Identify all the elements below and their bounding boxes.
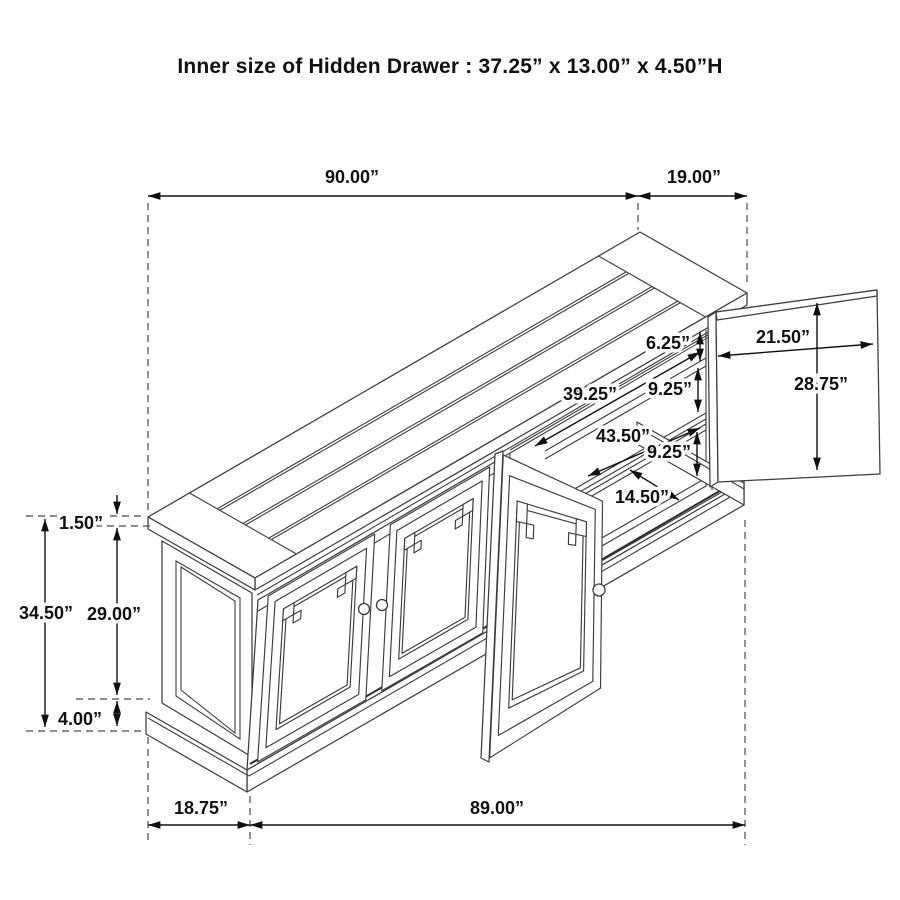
door-open-corner-step bbox=[516, 501, 527, 524]
dim-label-interior-width-upper: 39.25” bbox=[563, 384, 617, 404]
dim-label-top-depth: 19.00” bbox=[667, 167, 721, 187]
door-open-corner-step bbox=[576, 519, 587, 537]
dim-label-door-height: 29.00” bbox=[87, 604, 141, 624]
door-open-outline bbox=[490, 455, 603, 758]
knob-middle-door[interactable] bbox=[377, 600, 388, 611]
dim-label-base-height: 4.00” bbox=[58, 709, 102, 729]
door-open-corner-step bbox=[568, 533, 576, 546]
dim-label-shelf-spacing-mid: 9.25” bbox=[648, 379, 692, 399]
dim-label-overall-height: 34.50” bbox=[19, 603, 73, 623]
dimension-diagram-page: Inner size of Hidden Drawer : 37.25” x 1… bbox=[0, 0, 900, 900]
knob-left-door[interactable] bbox=[359, 604, 370, 615]
door-open-corner-step bbox=[526, 524, 534, 539]
dim-label-interior-depth: 14.50” bbox=[615, 487, 669, 507]
cabinet-line-drawing: 90.00”19.00”6.25”9.25”9.25”39.25”43.50”1… bbox=[0, 0, 900, 900]
dim-label-shelf-spacing-low: 9.25” bbox=[647, 442, 691, 462]
dim-label-side-door-height: 28.75” bbox=[794, 374, 848, 394]
dim-label-interior-width-lower: 43.50” bbox=[596, 426, 650, 446]
dim-label-end-depth: 18.75” bbox=[174, 798, 228, 818]
knob-open-door[interactable] bbox=[593, 584, 605, 596]
dim-label-side-door-width: 21.50” bbox=[756, 327, 810, 347]
dim-label-top-thickness: 1.50” bbox=[59, 513, 103, 533]
door-open[interactable] bbox=[481, 451, 603, 762]
dim-label-front-length: 89.00” bbox=[470, 798, 524, 818]
dim-label-shelf-spacing-top: 6.25” bbox=[646, 333, 690, 353]
dim-label-top-length: 90.00” bbox=[325, 167, 379, 187]
